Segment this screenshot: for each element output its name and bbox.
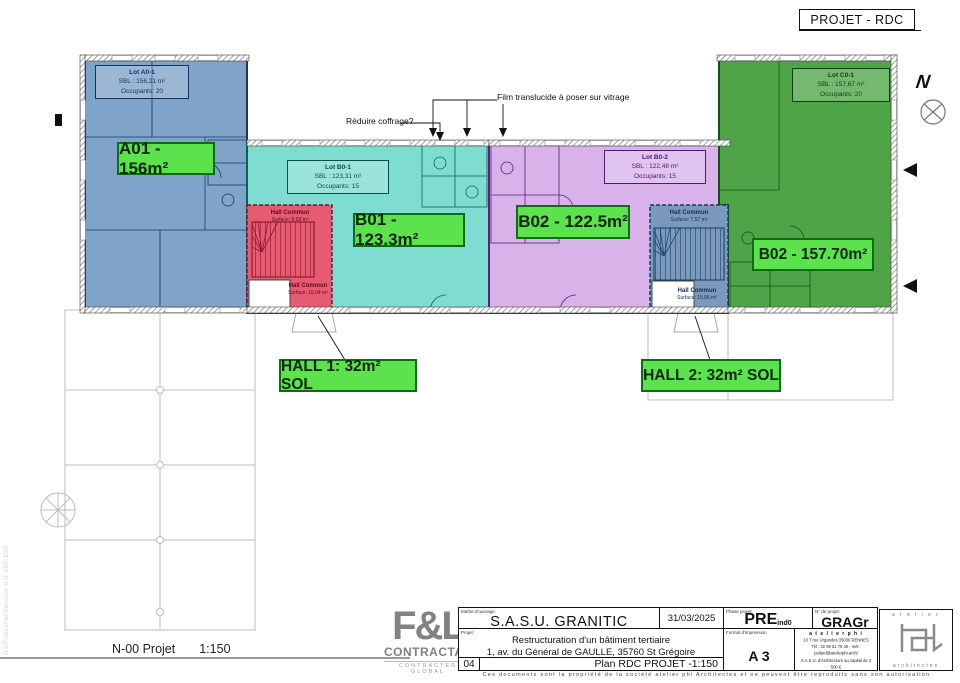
architect-rcs: 827 735 655 R.C.S. Rennes — [798, 670, 873, 671]
area-label-hall1: HALL 1: 32m² SOL — [279, 359, 417, 392]
footer-divider-line — [0, 657, 410, 659]
cad-watermark: GSPublisherVersion 0.0.100.100 — [3, 546, 10, 655]
lot-a01-info: Lot A0-1 SBL : 156,21 m² Occupants: 20 — [95, 65, 189, 99]
hall2-bottom-label: Hall Commun Surface: 15,06 m² — [658, 287, 736, 302]
drawing-reference: N-00 Projet 1:150 — [112, 642, 231, 656]
lot-c01-info: Lot C0-1 SBL : 157,67 m² Occupants: 20 — [792, 68, 890, 102]
titleblock-format-cell: Format d'impression A 3 — [723, 628, 795, 671]
titleblock-sheettitle-cell: Plan RDC PROJET -1:150 — [479, 657, 724, 671]
entry-porches — [292, 313, 718, 332]
area-label-b02: B02 - 122.5m² — [516, 205, 630, 239]
titleblock-date-cell: 31/03/2025 — [659, 607, 724, 629]
lot-b01-info: Lot B0-1 SBL : 123,31 m² Occupants: 15 — [287, 160, 389, 194]
drawing-name: N-00 Projet — [112, 642, 175, 656]
area-label-b01: B01 - 123.3m² — [353, 213, 465, 247]
client-label: Maître d'ouvrage: — [461, 609, 496, 614]
lot-b02-info: Lot B0-2 SBL : 122,48 m² Occupants: 15 — [604, 150, 706, 184]
titleblock-sheetno-cell: 04 — [458, 657, 480, 671]
terrace-left — [65, 310, 255, 630]
phase-index: ind0 — [777, 620, 791, 627]
hall1-top-label: Hall Commun Surface: 8,03 m² — [250, 209, 330, 224]
drawing-scale: 1:150 — [199, 642, 230, 656]
leader-arrowheads — [429, 128, 507, 141]
titleblock-architect-cell: a t e l i e r p h i 10 T rue Urgandes 35… — [794, 628, 878, 671]
architect-company: S.A.S.U. d'Architecture au capital de 2 … — [798, 657, 873, 670]
hall1-bottom-label: Hall Commun Surface: 16,04 m² — [272, 282, 344, 297]
project-line1: Restructuration d'un bâtiment tertiaire — [459, 635, 723, 647]
format-label: Format d'impression — [726, 630, 767, 635]
sheet-number: 04 — [459, 658, 479, 670]
architect-contact: Tél : 02 99 51 79 40 - mél : poliard@ate… — [798, 644, 873, 657]
titleblock-client-cell: Maître d'ouvrage: S.A.S.U. GRANITIC — [458, 607, 660, 629]
architect-logo-box: a t e l i e r architectes — [879, 609, 953, 671]
floor-plan-linework — [0, 0, 960, 683]
project-label: Projet : — [461, 630, 475, 635]
area-label-c01: B02 - 157.70m² — [752, 238, 874, 271]
sheet-title: Plan RDC PROJET -1:150 — [480, 658, 723, 670]
annotation-reduce-formwork: Réduire coffrage? — [346, 116, 413, 126]
compass-icon — [921, 100, 945, 124]
architect-address: 10 T rue Urgandes 35000 RENNES — [798, 637, 873, 644]
drawing-date: 31/03/2025 — [660, 608, 723, 628]
area-label-a01: A01 - 156m² — [117, 142, 215, 175]
hall2-top-label: Hall Commun Surface: 7,57 m² — [650, 209, 728, 224]
area-label-hall2: HALL 2: 32m² SOL — [641, 359, 781, 392]
drawing-sheet: PROJET - RDC Lot A0-1 SBL : 156,21 m² Oc… — [0, 0, 960, 683]
phase-label: Phase projet: — [726, 609, 753, 614]
architect-logo-glyph — [880, 618, 952, 658]
annotation-translucent-film: Film translucide à poser sur vitrage — [497, 92, 629, 102]
architect-logo-bottom-text: architectes — [880, 663, 952, 669]
drawing-title: PROJET - RDC — [799, 9, 915, 30]
titleblock-project-cell: Projet : Restructuration d'un bâtiment t… — [458, 628, 724, 658]
format-value: A 3 — [724, 629, 794, 671]
titleblock-phase-cell: Phase projet: PRE ind0 — [723, 607, 813, 629]
drawing-title-underline — [799, 30, 921, 31]
north-label: N — [914, 72, 931, 94]
spiral-stair-icon — [41, 493, 75, 527]
titleblock-projectno-cell: N° de projet: GRAGr — [812, 607, 878, 629]
copyright-text: Ces documents sont la propriété de la so… — [458, 672, 955, 678]
project-no-label: N° de projet: — [815, 609, 840, 614]
